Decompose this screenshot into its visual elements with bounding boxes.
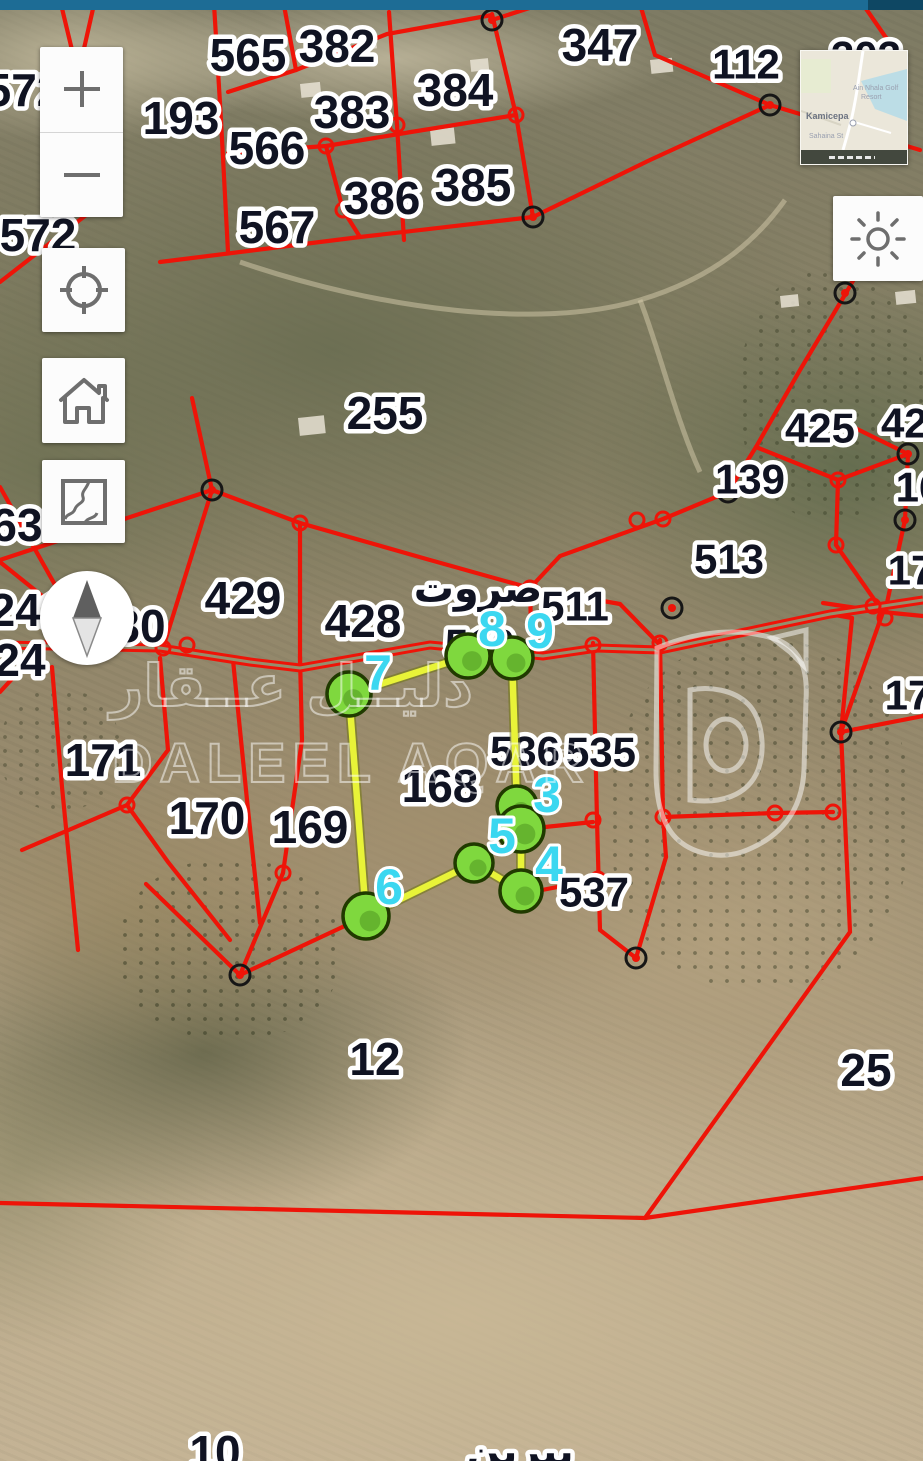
parcel-boundary-line bbox=[663, 812, 833, 817]
parcel-boundary-line bbox=[600, 930, 636, 958]
plus-icon bbox=[60, 67, 104, 111]
parcel-label-112: 112 bbox=[712, 41, 780, 88]
zoom-in-button[interactable] bbox=[40, 47, 123, 133]
vertex-number-5: 5 bbox=[488, 808, 516, 864]
parcel-label-63: 63 bbox=[0, 499, 43, 551]
survey-marker-dot bbox=[901, 516, 909, 524]
parcel-boundary-line bbox=[192, 398, 212, 490]
parcel-boundary-line bbox=[163, 490, 212, 648]
home-button[interactable] bbox=[42, 358, 125, 443]
survey-marker-dot bbox=[841, 289, 849, 297]
building bbox=[895, 290, 916, 305]
vertex-shade bbox=[343, 689, 363, 709]
parcel-label-255: 255 bbox=[347, 387, 424, 439]
status-bar-dark bbox=[868, 0, 923, 10]
minimap-poi-label2: Resort bbox=[861, 94, 882, 101]
parcel-boundary-line bbox=[645, 732, 850, 1218]
basemap-button[interactable] bbox=[42, 460, 125, 543]
minus-icon bbox=[60, 153, 104, 197]
parcel-label-25: 25 bbox=[840, 1044, 891, 1096]
parcel-label-537: 537 bbox=[559, 869, 629, 916]
minimap-inset[interactable]: Kamicepa Ain Nhala Golf Resort Sahaina S… bbox=[800, 50, 908, 165]
parcel-boundary-line bbox=[22, 805, 127, 850]
map-app-screen: 5653823843831935663863855673471123035725… bbox=[0, 0, 923, 1461]
compass-needle-icon bbox=[40, 571, 134, 665]
parcel-overlay[interactable]: 5653823843831935663863855673471123035725… bbox=[0, 0, 923, 1461]
vertex-shade bbox=[469, 859, 486, 876]
vertex-number-9: 9 bbox=[526, 603, 554, 659]
parcel-label-168: 168 bbox=[402, 760, 479, 812]
survey-marker-dot bbox=[766, 101, 774, 109]
parcel-label-566: 566 bbox=[229, 122, 306, 174]
vertex-number-8: 8 bbox=[478, 601, 506, 657]
status-bar-main bbox=[0, 0, 868, 10]
zoom-out-button[interactable] bbox=[40, 133, 123, 218]
vertex-number-7: 7 bbox=[364, 645, 392, 701]
parcel-boundary-line bbox=[530, 519, 663, 588]
minimap-scale-strip bbox=[801, 150, 907, 164]
parcel-boundary-line bbox=[52, 667, 78, 950]
locate-button[interactable] bbox=[42, 248, 125, 332]
parcel-boundary-line bbox=[636, 857, 666, 958]
vertex-shade bbox=[515, 824, 536, 845]
parcel-label-383: 383 bbox=[314, 86, 391, 138]
parcel-label-513: 513 bbox=[694, 536, 764, 583]
map-layers-icon bbox=[59, 477, 109, 527]
parcel-label-565: 565 bbox=[210, 29, 287, 81]
vertex-number-3: 3 bbox=[533, 767, 561, 823]
parcel-label-425: 425 bbox=[785, 405, 855, 452]
minimap-town-label: Kamicepa bbox=[806, 111, 849, 121]
brightness-button[interactable] bbox=[833, 196, 923, 281]
survey-marker-dot bbox=[488, 16, 496, 24]
parcel-label-17: 17 bbox=[885, 672, 923, 719]
parcel-label-139: 139 bbox=[715, 456, 785, 503]
parcel-label-169: 169 bbox=[272, 801, 349, 853]
survey-marker-dot bbox=[904, 450, 912, 458]
junction-circle bbox=[630, 513, 644, 527]
parcel-label-567: 567 bbox=[239, 201, 316, 253]
parcel-label-384: 384 bbox=[417, 64, 494, 116]
vertex-shade bbox=[516, 887, 535, 906]
building bbox=[298, 415, 326, 436]
parcel-label-بيرين: بيرين bbox=[466, 1429, 573, 1461]
parcel-label-385: 385 bbox=[435, 159, 512, 211]
survey-marker-dot bbox=[236, 971, 244, 979]
parcel-label-429: 429 bbox=[205, 572, 282, 624]
parcel-boundary-line bbox=[146, 884, 240, 975]
watermark-logo bbox=[656, 630, 806, 855]
home-icon bbox=[57, 376, 111, 426]
parcel-label-170: 170 bbox=[169, 792, 246, 844]
parcel-label-425: 425 bbox=[881, 400, 923, 447]
parcel-label-193: 193 bbox=[143, 92, 220, 144]
vertex-number-4: 4 bbox=[535, 836, 563, 892]
parcel-label-12: 12 bbox=[349, 1033, 400, 1085]
parcel-label-17: 17 bbox=[888, 547, 923, 594]
survey-marker-dot bbox=[529, 213, 537, 221]
parcel-boundary-line bbox=[533, 105, 770, 217]
minimap-poi-label: Ain Nhala Golf bbox=[853, 85, 898, 92]
survey-marker-dot bbox=[632, 954, 640, 962]
parcel-boundary-line bbox=[0, 1178, 923, 1218]
minimap-street-label: Sahaina St bbox=[809, 133, 843, 140]
parcel-label-386: 386 bbox=[344, 172, 421, 224]
survey-marker-dot bbox=[208, 486, 216, 494]
crosshair-icon bbox=[58, 264, 110, 316]
parcel-label-535: 535 bbox=[566, 729, 636, 776]
vertex-number-6: 6 bbox=[375, 859, 403, 915]
building bbox=[780, 294, 799, 308]
status-bar bbox=[0, 0, 923, 10]
parcel-label-428: 428 bbox=[325, 595, 402, 647]
parcel-label-382: 382 bbox=[299, 20, 376, 72]
parcel-label-16: 16 bbox=[896, 464, 923, 511]
dirt-track bbox=[640, 300, 700, 472]
vertex-shade bbox=[507, 654, 526, 673]
parcel-boundary-line bbox=[212, 490, 300, 523]
sun-icon bbox=[850, 211, 906, 267]
zoom-control bbox=[40, 47, 123, 217]
survey-marker-dot bbox=[837, 728, 845, 736]
compass-button[interactable] bbox=[40, 571, 134, 665]
dirt-track bbox=[240, 200, 785, 314]
parcel-label-10: 10 bbox=[189, 1426, 240, 1461]
parcel-label-171: 171 bbox=[65, 734, 142, 786]
survey-marker-dot bbox=[668, 604, 676, 612]
parcel-label-347: 347 bbox=[562, 19, 639, 71]
